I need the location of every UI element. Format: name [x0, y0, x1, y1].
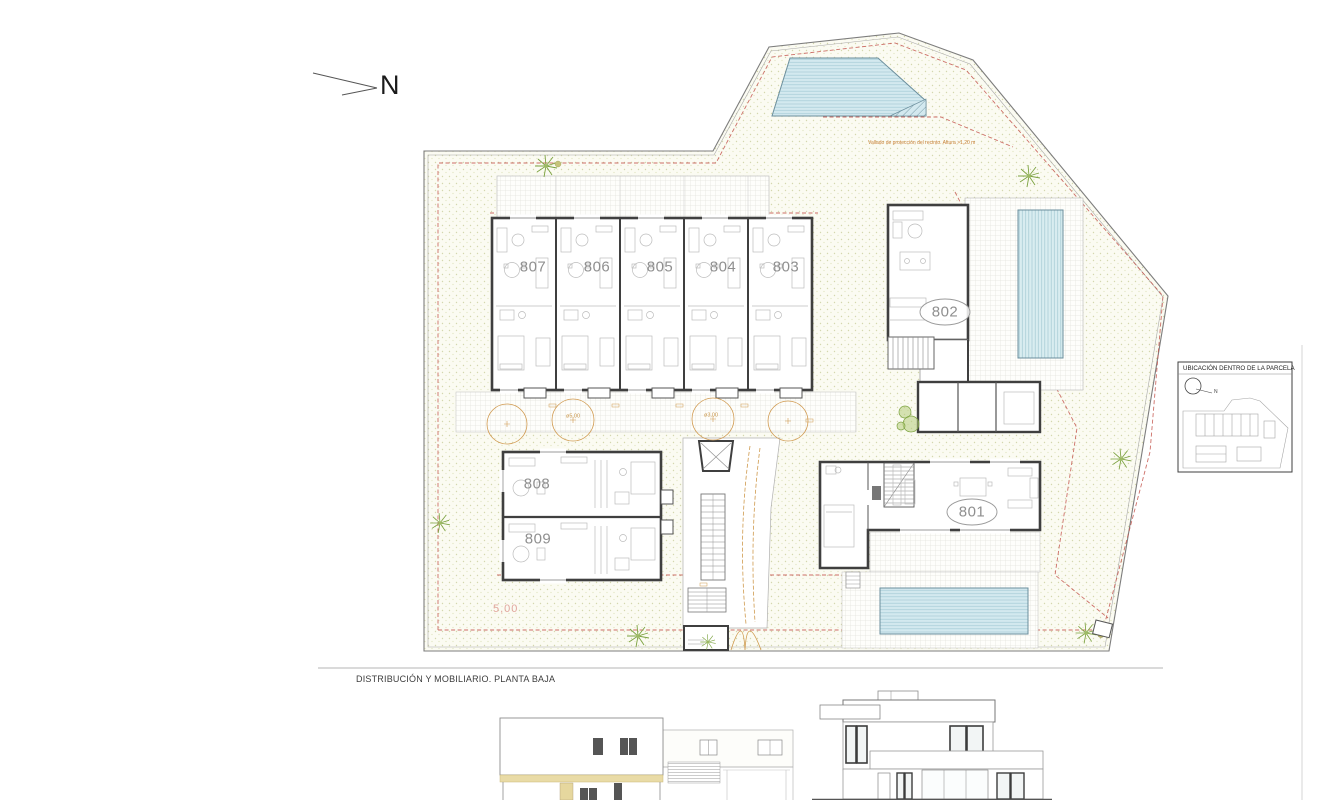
unit-label-802: 802: [932, 305, 959, 320]
unit-label-809: 809: [525, 532, 552, 547]
unit-label-808: 808: [524, 477, 551, 492]
unit-label-804: 804: [710, 260, 737, 275]
north-label: N: [380, 72, 400, 99]
entrance-gate: [684, 626, 728, 650]
north-arrow-icon: [313, 73, 377, 95]
drawing-title: DISTRIBUCIÓN Y MOBILIARIO. PLANTA BAJA: [356, 675, 555, 684]
inset-location-map: [1178, 362, 1292, 472]
elevation-right: [812, 691, 1052, 800]
fence-note: Vallado de protección del recinto. Altur…: [868, 141, 975, 146]
semidetached-block: [500, 449, 674, 584]
tree-diameter-label-small: ø3,00: [704, 413, 718, 419]
plan-sheet: N Vallado de protección del recinto. Alt…: [0, 0, 1320, 800]
townhouse-block: [492, 215, 812, 399]
central-walkway: [683, 438, 780, 650]
tree-diameter-label-large: ø5,00: [566, 414, 580, 420]
unit-label-807: 807: [520, 260, 547, 275]
unit-label-803: 803: [773, 260, 800, 275]
setback-dimension: 5,00: [493, 604, 518, 615]
site-plan-drawing: [0, 0, 1320, 800]
inset-title: UBICACIÓN DENTRO DE LA PARCELA: [1183, 366, 1295, 372]
unit-label-801: 801: [959, 505, 986, 520]
unit-label-806: 806: [584, 260, 611, 275]
unit-label-805: 805: [647, 260, 674, 275]
inset-north-label: N: [1214, 390, 1218, 395]
pool-801: [880, 588, 1028, 634]
elevation-left: [500, 718, 793, 800]
